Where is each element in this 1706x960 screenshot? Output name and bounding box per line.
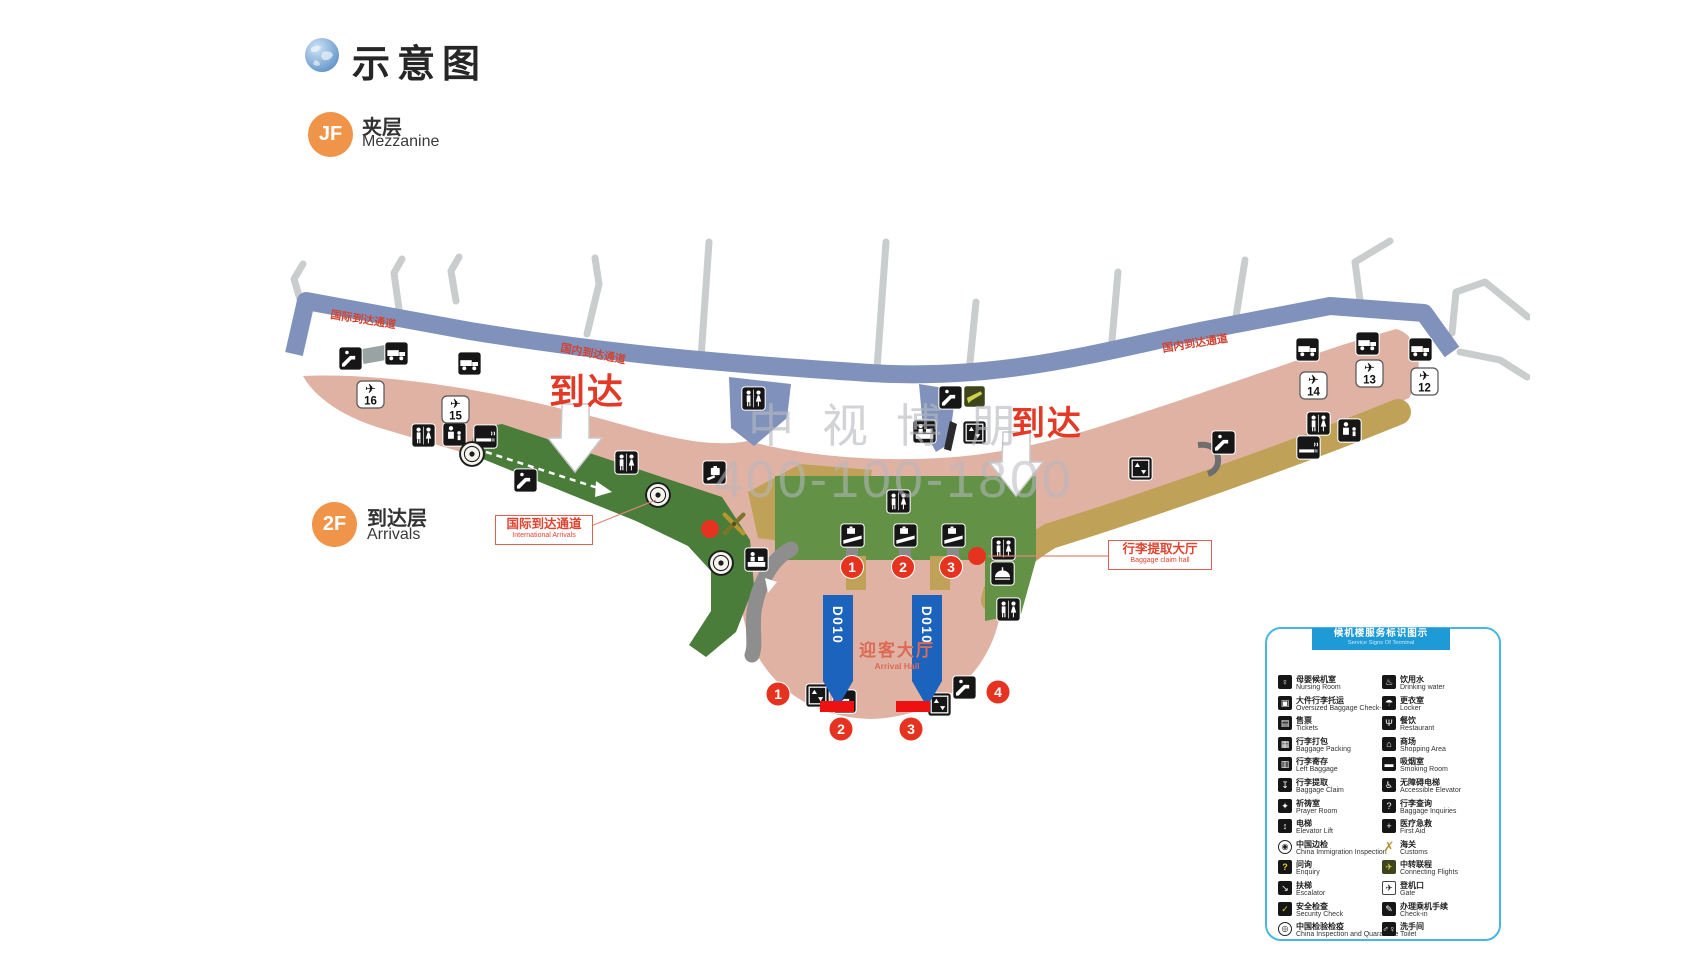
legend-item: ✦ 祈祷室Prayer Room [1278,799,1390,820]
gate-number: 13 [1363,375,1376,387]
inspection-stamp-icon [646,483,670,507]
elevator-icon [963,421,986,444]
red-dot-marker [968,547,986,565]
prayer-room-icon: ✦ [1278,799,1292,813]
gate-15: ✈ 15 [442,396,469,423]
carousel-number: 2 [899,559,907,575]
legend-item: ▦ 行李打包Baggage Packing [1278,737,1390,758]
legend-en: Enquiry [1296,869,1320,878]
legend-en: Elevator Lift [1296,828,1333,837]
nursing-room-icon [443,423,466,446]
baggage-inquiries-icon: ? [1382,799,1396,813]
legend-zh: 办理乘机手续 [1400,902,1448,911]
legend-zh: 吸烟室 [1400,757,1448,766]
plane-icon: ✈ [365,381,376,396]
gate-number: 16 [364,396,377,408]
oversized-baggage-icon: ▣ [1278,696,1292,710]
toilet-icon [992,537,1015,560]
toilet-icon [615,451,638,474]
legend-en: Smoking Room [1400,766,1448,775]
page: 示意图 JF 夹层 Mezzanine 2F 到达层 Arrivals 中视博朋… [0,0,1706,960]
legend-zh: 问询 [1296,860,1320,869]
connector-sprite [361,345,388,364]
legend-header-zh: 候机楼服务标识图示 [1312,628,1450,640]
legend-item: ↕ 电梯Elevator Lift [1278,819,1390,840]
floor-badge-arrivals: 2F [312,502,357,547]
toilet-icon: ♂♀ [1382,922,1396,936]
baggage-claim-hall-zh: 行李提取大厅 [1109,542,1211,557]
legend-en: Nursing Room [1296,684,1341,693]
legend-en: Toilet [1400,931,1424,940]
legend-panel: 候机楼服务标识图示 Service Signs Of Terminal ♀ 母婴… [1265,627,1501,941]
legend-en: Oversized Baggage Check-in [1296,705,1387,714]
legend-en: Gate [1400,890,1424,899]
baggage-cart-icon [458,352,481,375]
carousel-number: 3 [947,559,955,575]
legend-en: Baggage Inquiries [1400,808,1456,817]
international-arrivals-label: 国际到达通道 International Arrivals [495,515,593,545]
legend-zh: 扶梯 [1296,881,1325,890]
legend-item: ♂♀ 洗手间Toilet [1382,922,1494,943]
legend-en: Baggage Packing [1296,746,1351,755]
carousel-marker-2: 2 [892,556,915,579]
carousel-icon [942,524,965,547]
toilet-icon [742,387,765,410]
gate-number: 14 [1307,387,1320,399]
door-marker-3: 3 [899,717,923,741]
locker-icon [991,562,1014,585]
first-aid-icon: + [1382,819,1396,833]
gate-12: ✈ 12 [1411,368,1438,395]
toilet-icon [887,490,910,513]
legend-zh: 登机口 [1400,881,1424,890]
globe-icon [303,36,341,74]
door-number: 1 [774,686,782,702]
legend-en: Customs [1400,849,1428,858]
china-immigration-icon: ◉ [1278,840,1292,854]
check-in-icon [913,420,936,443]
legend-zh: 母婴候机室 [1296,675,1341,684]
arrival-hall-label-zh: 迎客大厅 [859,640,935,660]
legend-item: + 医疗急救First Aid [1382,819,1494,840]
carousel-marker-3: 3 [940,556,963,579]
inspection-stamp-icon [709,551,733,575]
legend-item: ✈ 登机口Gate [1382,881,1494,902]
legend-en: First Aid [1400,828,1432,837]
legend-zh: 售票 [1296,716,1318,725]
legend-zh: 商场 [1400,737,1446,746]
legend-item: ◎ 中国检验检疫China Inspection and Quarantine [1278,922,1390,943]
enquiry-icon: ? [1278,860,1292,874]
baggage-cart-icon [1356,332,1379,355]
legend-header: 候机楼服务标识图示 Service Signs Of Terminal [1312,628,1450,650]
customs-icon: ✗ [1382,840,1396,854]
drinking-water-icon: ♨ [1382,675,1396,689]
legend-item: ✈ 中转联程Connecting Flights [1382,860,1494,881]
legend-zh: 大件行李托运 [1296,696,1387,705]
plane-icon: ✈ [1308,372,1319,387]
legend-zh: 行李提取 [1296,778,1344,787]
red-dot-marker [701,520,719,538]
legend-zh: 电梯 [1296,819,1333,828]
legend-en: Restaurant [1400,725,1434,734]
gate-16: ✈ 16 [357,381,384,408]
legend-item: ↧ 行李提取Baggage Claim [1278,778,1390,799]
baggage-cart-icon [1409,338,1432,361]
door-number: 3 [907,721,915,737]
escalator-icon [939,386,962,409]
legend-zh: 餐饮 [1400,716,1434,725]
d010-label: D010 [830,606,845,644]
legend-column-right: ♨ 饮用水Drinking water ☂ 更衣室Locker Ψ 餐饮Rest… [1382,675,1494,943]
toilet-icon [412,424,435,447]
legend-zh: 饮用水 [1400,675,1445,684]
international-arrivals-zh: 国际到达通道 [496,517,592,532]
escalator-icon [339,347,362,370]
elevator-icon: ↕ [1278,819,1292,833]
arrival-text-right: 到达 [1011,396,1083,445]
smoking-room-icon: ▬ [1382,757,1396,771]
legend-zh: 中转联程 [1400,860,1458,869]
exit-bar [820,701,854,712]
legend-item: ☂ 更衣室Locker [1382,696,1494,717]
plane-icon: ✈ [1364,360,1375,375]
legend-en: Prayer Room [1296,808,1337,817]
carousel-icon [894,524,917,547]
legend-zh: 海关 [1400,840,1428,849]
baggage-claim-hall-label: 行李提取大厅 Baggage claim hall [1108,540,1212,570]
baggage-claim-icon: ↧ [1278,778,1292,792]
connecting-flights-icon: ✈ [1382,860,1396,874]
gate-number: 15 [449,411,462,423]
shopping-area-icon: ⌂ [1382,737,1396,751]
legend-item: ♿ 无障碍电梯Accessible Elevator [1382,778,1494,799]
door-marker-2: 2 [829,717,853,741]
legend-en: Connecting Flights [1400,869,1458,878]
door-marker-4: 4 [986,680,1010,704]
escalator-icon [514,469,537,492]
check-in-icon [745,548,768,571]
legend-en: China Inspection and Quarantine [1296,931,1390,940]
toilet-icon [1307,412,1330,435]
legend-item: ▤ 售票Tickets [1278,716,1390,737]
legend-zh: 安全检查 [1296,902,1343,911]
plane-icon: ✈ [1419,368,1430,383]
baggage-cart-icon [385,342,408,365]
security-check-icon: ✓ [1278,902,1292,916]
legend-en: Check-in [1400,911,1448,920]
legend-column-left: ♀ 母婴候机室Nursing Room ▣ 大件行李托运Oversized Ba… [1278,675,1390,943]
nursing-room-icon: ♀ [1278,675,1292,689]
legend-item: ? 行李查询Baggage Inquiries [1382,799,1494,820]
floor-badge-mezzanine: JF [308,112,353,157]
legend-item: ? 问询Enquiry [1278,860,1390,881]
escalator-icon [953,676,976,699]
door-number: 4 [994,684,1002,700]
carousel-icon [841,524,864,547]
exit-bar [896,701,930,712]
door-marker-1: 1 [766,682,790,706]
toilet-icon [997,598,1020,621]
legend-zh: 洗手间 [1400,922,1424,931]
legend-en: Tickets [1296,725,1318,734]
legend-zh: 行李寄存 [1296,757,1338,766]
legend-zh: 无障碍电梯 [1400,778,1461,787]
left-baggage-icon: ▥ [1278,757,1292,771]
international-arrivals-en: International Arrivals [496,532,592,540]
nursing-room-icon [1338,419,1361,442]
inspection-stamp-icon [460,442,484,466]
d010-label: D010 [919,606,934,644]
floor-label-arrivals-en: Arrivals [367,526,420,544]
legend-item: ✎ 办理乘机手续Check-in [1382,902,1494,923]
gate-icon: ✈ [1382,881,1396,895]
legend-en: Escalator [1296,890,1325,899]
accessible-elevator-icon: ♿ [1382,778,1396,792]
legend-zh: 行李打包 [1296,737,1351,746]
arrival-text-left: 到达 [549,363,625,415]
legend-item: ↘ 扶梯Escalator [1278,881,1390,902]
baggage-cart-icon [1296,338,1319,361]
legend-en: Accessible Elevator [1400,787,1461,796]
escalator-icon: ↘ [1278,881,1292,895]
legend-item: ▬ 吸烟室Smoking Room [1382,757,1494,778]
plane-icon: ✈ [450,396,461,411]
legend-header-en: Service Signs Of Terminal [1312,640,1450,647]
legend-item: ♨ 饮用水Drinking water [1382,675,1494,696]
legend-en: Locker [1400,705,1424,714]
locker-icon: ☂ [1382,696,1396,710]
gate-14: ✈ 14 [1300,372,1327,399]
carousel-marker-1: 1 [841,556,864,579]
legend-item: ♀ 母婴候机室Nursing Room [1278,675,1390,696]
legend-zh: 医疗急救 [1400,819,1432,828]
smoking-room-icon [1297,436,1320,459]
check-in-icon: ✎ [1382,902,1396,916]
tickets-icon: ▤ [1278,716,1292,730]
legend-zh: 中国检验检疫 [1296,922,1390,931]
legend-item: ✗ 海关Customs [1382,840,1494,861]
legend-zh: 行李查询 [1400,799,1456,808]
baggage-packing-icon: ▦ [1278,737,1292,751]
legend-en: Left Baggage [1296,766,1338,775]
legend-item: ✓ 安全检查Security Check [1278,902,1390,923]
restaurant-icon: Ψ [1382,716,1396,730]
legend-zh: 祈祷室 [1296,799,1337,808]
carousel-number: 1 [848,559,856,575]
legend-zh: 更衣室 [1400,696,1424,705]
legend-item: ⌂ 商场Shopping Area [1382,737,1494,758]
legend-en: Shopping Area [1400,746,1446,755]
legend-en: China Immigration Inspection [1296,849,1387,858]
legend-item: ▥ 行李寄存Left Baggage [1278,757,1390,778]
page-title: 示意图 [352,33,487,88]
legend-item: ◉ 中国边检China Immigration Inspection [1278,840,1390,861]
legend-en: Drinking water [1400,684,1445,693]
arrival-hall-label-en: Arrival Hall [875,661,920,671]
door-number: 2 [837,721,845,737]
gate-13: ✈ 13 [1356,360,1383,387]
gate-number: 12 [1418,383,1431,395]
floor-label-mezzanine-en: Mezzanine [362,133,439,151]
legend-item: ▣ 大件行李托运Oversized Baggage Check-in [1278,696,1390,717]
escalator-icon [1212,431,1235,454]
legend-en: Security Check [1296,911,1343,920]
elevator-icon [1129,457,1152,480]
china-inspection-icon: ◎ [1278,922,1292,936]
baggage-claim-hall-en: Baggage claim hall [1109,557,1211,565]
legend-item: Ψ 餐饮Restaurant [1382,716,1494,737]
connecting-flights-icon [964,386,985,407]
legend-en: Baggage Claim [1296,787,1344,796]
legend-zh: 中国边检 [1296,840,1387,849]
baggage-claim-icon [703,461,726,484]
